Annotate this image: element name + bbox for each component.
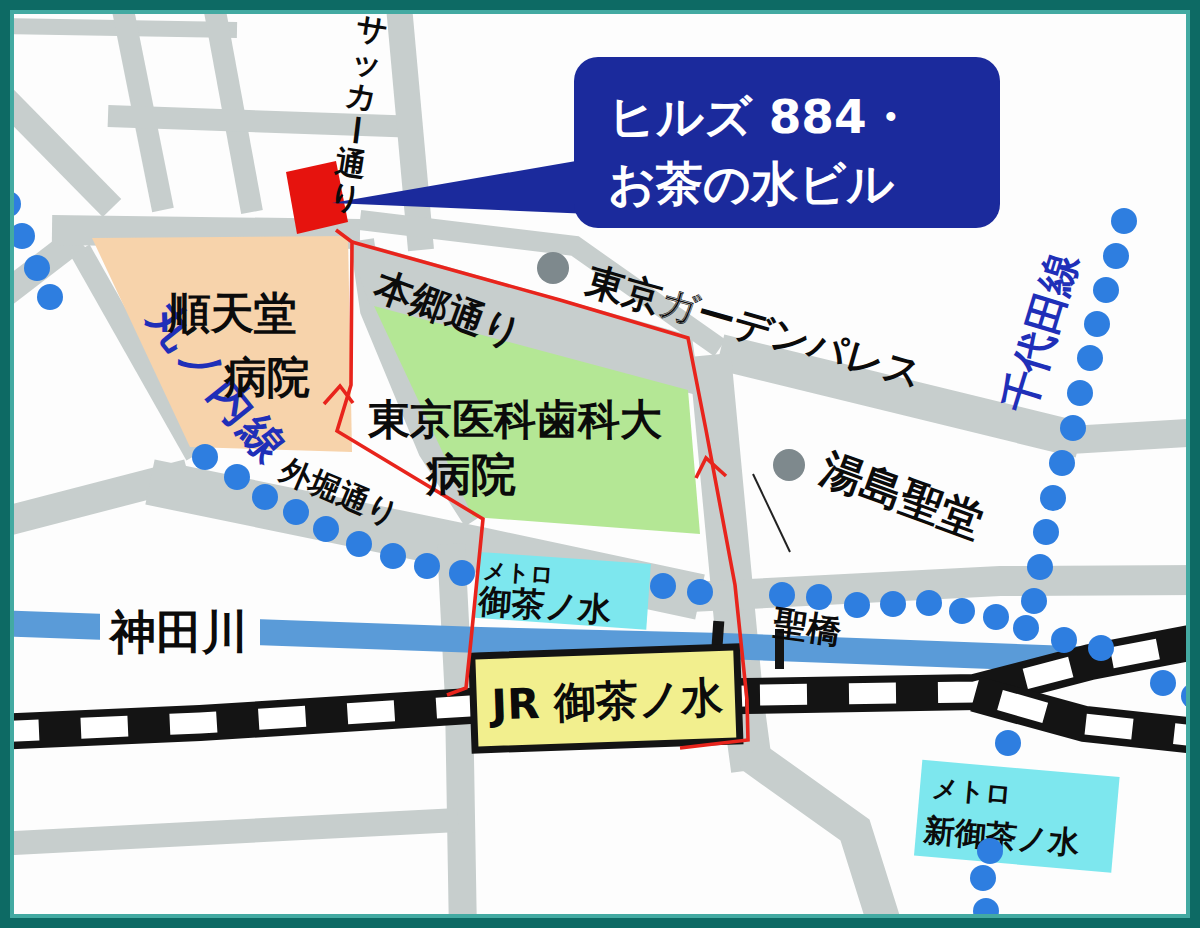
jr-ochanomizu-label: JR 御茶ノ水: [488, 672, 725, 729]
map-frame: メトロ 御茶ノ水 JR 御茶ノ水 メトロ 新御茶ノ水: [0, 0, 1200, 928]
callout-title-line2: お茶の水ビル: [608, 156, 894, 211]
tmd-label-line1: 東京医科歯科大: [367, 395, 662, 444]
metro-ochanomizu-box: メトロ 御茶ノ水: [475, 552, 651, 632]
jr-ochanomizu-box: JR 御茶ノ水: [472, 647, 740, 750]
callout-title-line1: ヒルズ 884・: [608, 89, 914, 144]
juntendo-label-line1: 順天堂: [166, 288, 297, 338]
juntendo-label-line2: 病院: [223, 352, 310, 402]
yushima-seido-dot: [773, 449, 805, 481]
metro-shin-ochanomizu-box: メトロ 新御茶ノ水: [914, 760, 1120, 873]
svg-text:り: り: [327, 177, 364, 218]
garden-palace-dot: [537, 252, 569, 284]
svg-text:カ: カ: [343, 76, 380, 117]
svg-text:ー: ー: [337, 112, 377, 147]
kanda-river-label: 神田川: [108, 605, 248, 659]
tmd-label-line2: 病院: [425, 448, 516, 501]
